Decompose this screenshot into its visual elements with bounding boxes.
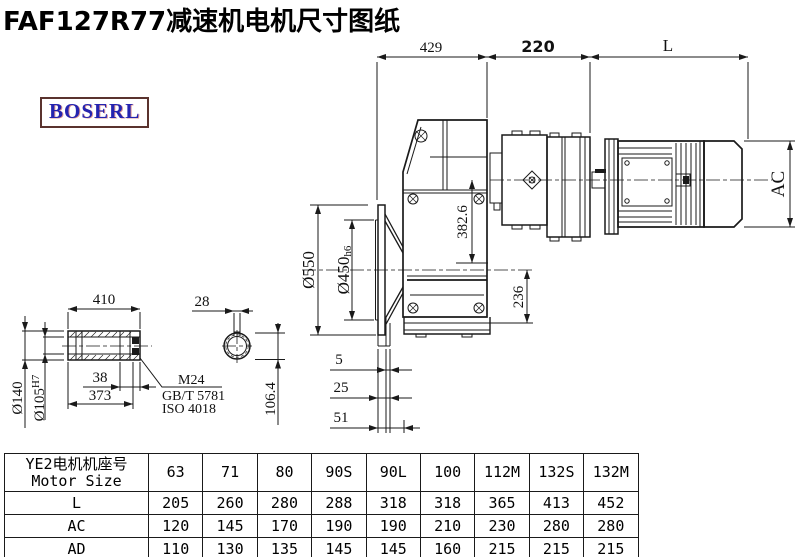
dim-236-label: 236 xyxy=(511,285,527,308)
table-cell: 170 xyxy=(257,515,311,538)
dim-keyway-width-label: 28 xyxy=(195,294,210,310)
table-cell: 288 xyxy=(312,492,366,515)
table-cell: 413 xyxy=(529,492,583,515)
vertical-dimensions xyxy=(310,141,795,335)
table-cell: 365 xyxy=(475,492,529,515)
dim-410-label: 410 xyxy=(93,292,116,308)
dim-flange-od-label: Ø550 xyxy=(299,251,318,289)
table-cell: 205 xyxy=(149,492,203,515)
centerlines xyxy=(62,180,772,363)
motor-adapter xyxy=(490,131,590,241)
dim-shaft-od-label: Ø140 xyxy=(10,381,26,414)
thread-note-line3: ISO 4018 xyxy=(162,402,216,417)
table-row-AD: AD 110 130 135 145 145 160 215 215 215 xyxy=(5,538,639,557)
table-cell: 210 xyxy=(420,515,474,538)
table-cell: 318 xyxy=(420,492,474,515)
table-row-AC: AC 120 145 170 190 190 210 230 280 280 xyxy=(5,515,639,538)
size-col: 71 xyxy=(203,454,257,492)
table-cell: 452 xyxy=(584,492,638,515)
row-label: L xyxy=(5,492,149,515)
size-col: 80 xyxy=(257,454,311,492)
output-flange xyxy=(376,205,404,346)
size-col: 112M xyxy=(475,454,529,492)
table-cell: 280 xyxy=(584,515,638,538)
dim-429-label: 429 xyxy=(420,40,443,56)
table-cell: 145 xyxy=(312,538,366,557)
dim-spigot-label: Ø450h6 xyxy=(334,245,354,294)
dim-25-label: 25 xyxy=(334,380,349,396)
table-cell: 190 xyxy=(366,515,420,538)
table-header-row: YE2电机机座号 Motor Size 63 71 80 90S 90L 100… xyxy=(5,454,639,492)
table-cell: 160 xyxy=(420,538,474,557)
table-cell: 280 xyxy=(529,515,583,538)
motor-size-header-en: Motor Size xyxy=(5,473,148,490)
thread-note-line1: M24 xyxy=(178,373,204,388)
table-cell: 120 xyxy=(149,515,203,538)
motor-size-header-cell: YE2电机机座号 Motor Size xyxy=(5,454,149,492)
size-col: 132S xyxy=(529,454,583,492)
table-cell: 110 xyxy=(149,538,203,557)
motor-size-header-cn: YE2电机机座号 xyxy=(5,456,148,473)
table-cell: 215 xyxy=(584,538,638,557)
size-col: 90S xyxy=(312,454,366,492)
table-cell: 135 xyxy=(257,538,311,557)
dim-AC-label: AC xyxy=(768,171,789,197)
table-cell: 145 xyxy=(366,538,420,557)
table-cell: 318 xyxy=(366,492,420,515)
table-row-L: L 205 260 280 288 318 318 365 413 452 xyxy=(5,492,639,515)
size-col: 132M xyxy=(584,454,638,492)
table-cell: 190 xyxy=(312,515,366,538)
table-cell: 260 xyxy=(203,492,257,515)
motor-size-table: YE2电机机座号 Motor Size 63 71 80 90S 90L 100… xyxy=(4,453,639,557)
gearbox-housing xyxy=(403,120,490,337)
dim-382-label: 382.6 xyxy=(455,205,471,239)
row-label: AD xyxy=(5,538,149,557)
drawing-sheet: FAF127R77减速机电机尺寸图纸 BOSERL xyxy=(0,0,800,557)
table-cell: 215 xyxy=(529,538,583,557)
dim-220-label: 220 xyxy=(521,37,554,56)
table-cell: 280 xyxy=(257,492,311,515)
dim-L-label: L xyxy=(663,36,673,55)
size-col: 100 xyxy=(420,454,474,492)
dim-51-label: 51 xyxy=(334,410,349,426)
dim-38-label: 38 xyxy=(93,370,108,386)
fan-cowl xyxy=(704,141,742,227)
size-col: 63 xyxy=(149,454,203,492)
table-cell: 215 xyxy=(475,538,529,557)
size-col: 90L xyxy=(366,454,420,492)
table-cell: 130 xyxy=(203,538,257,557)
motor xyxy=(592,139,742,234)
row-label: AC xyxy=(5,515,149,538)
dim-373-label: 373 xyxy=(89,388,112,404)
table-cell: 230 xyxy=(475,515,529,538)
dimension-arrowheads xyxy=(22,54,793,431)
dim-keyway-height-label: 106.4 xyxy=(263,382,279,416)
dim-5-label: 5 xyxy=(335,352,343,368)
table-cell: 145 xyxy=(203,515,257,538)
